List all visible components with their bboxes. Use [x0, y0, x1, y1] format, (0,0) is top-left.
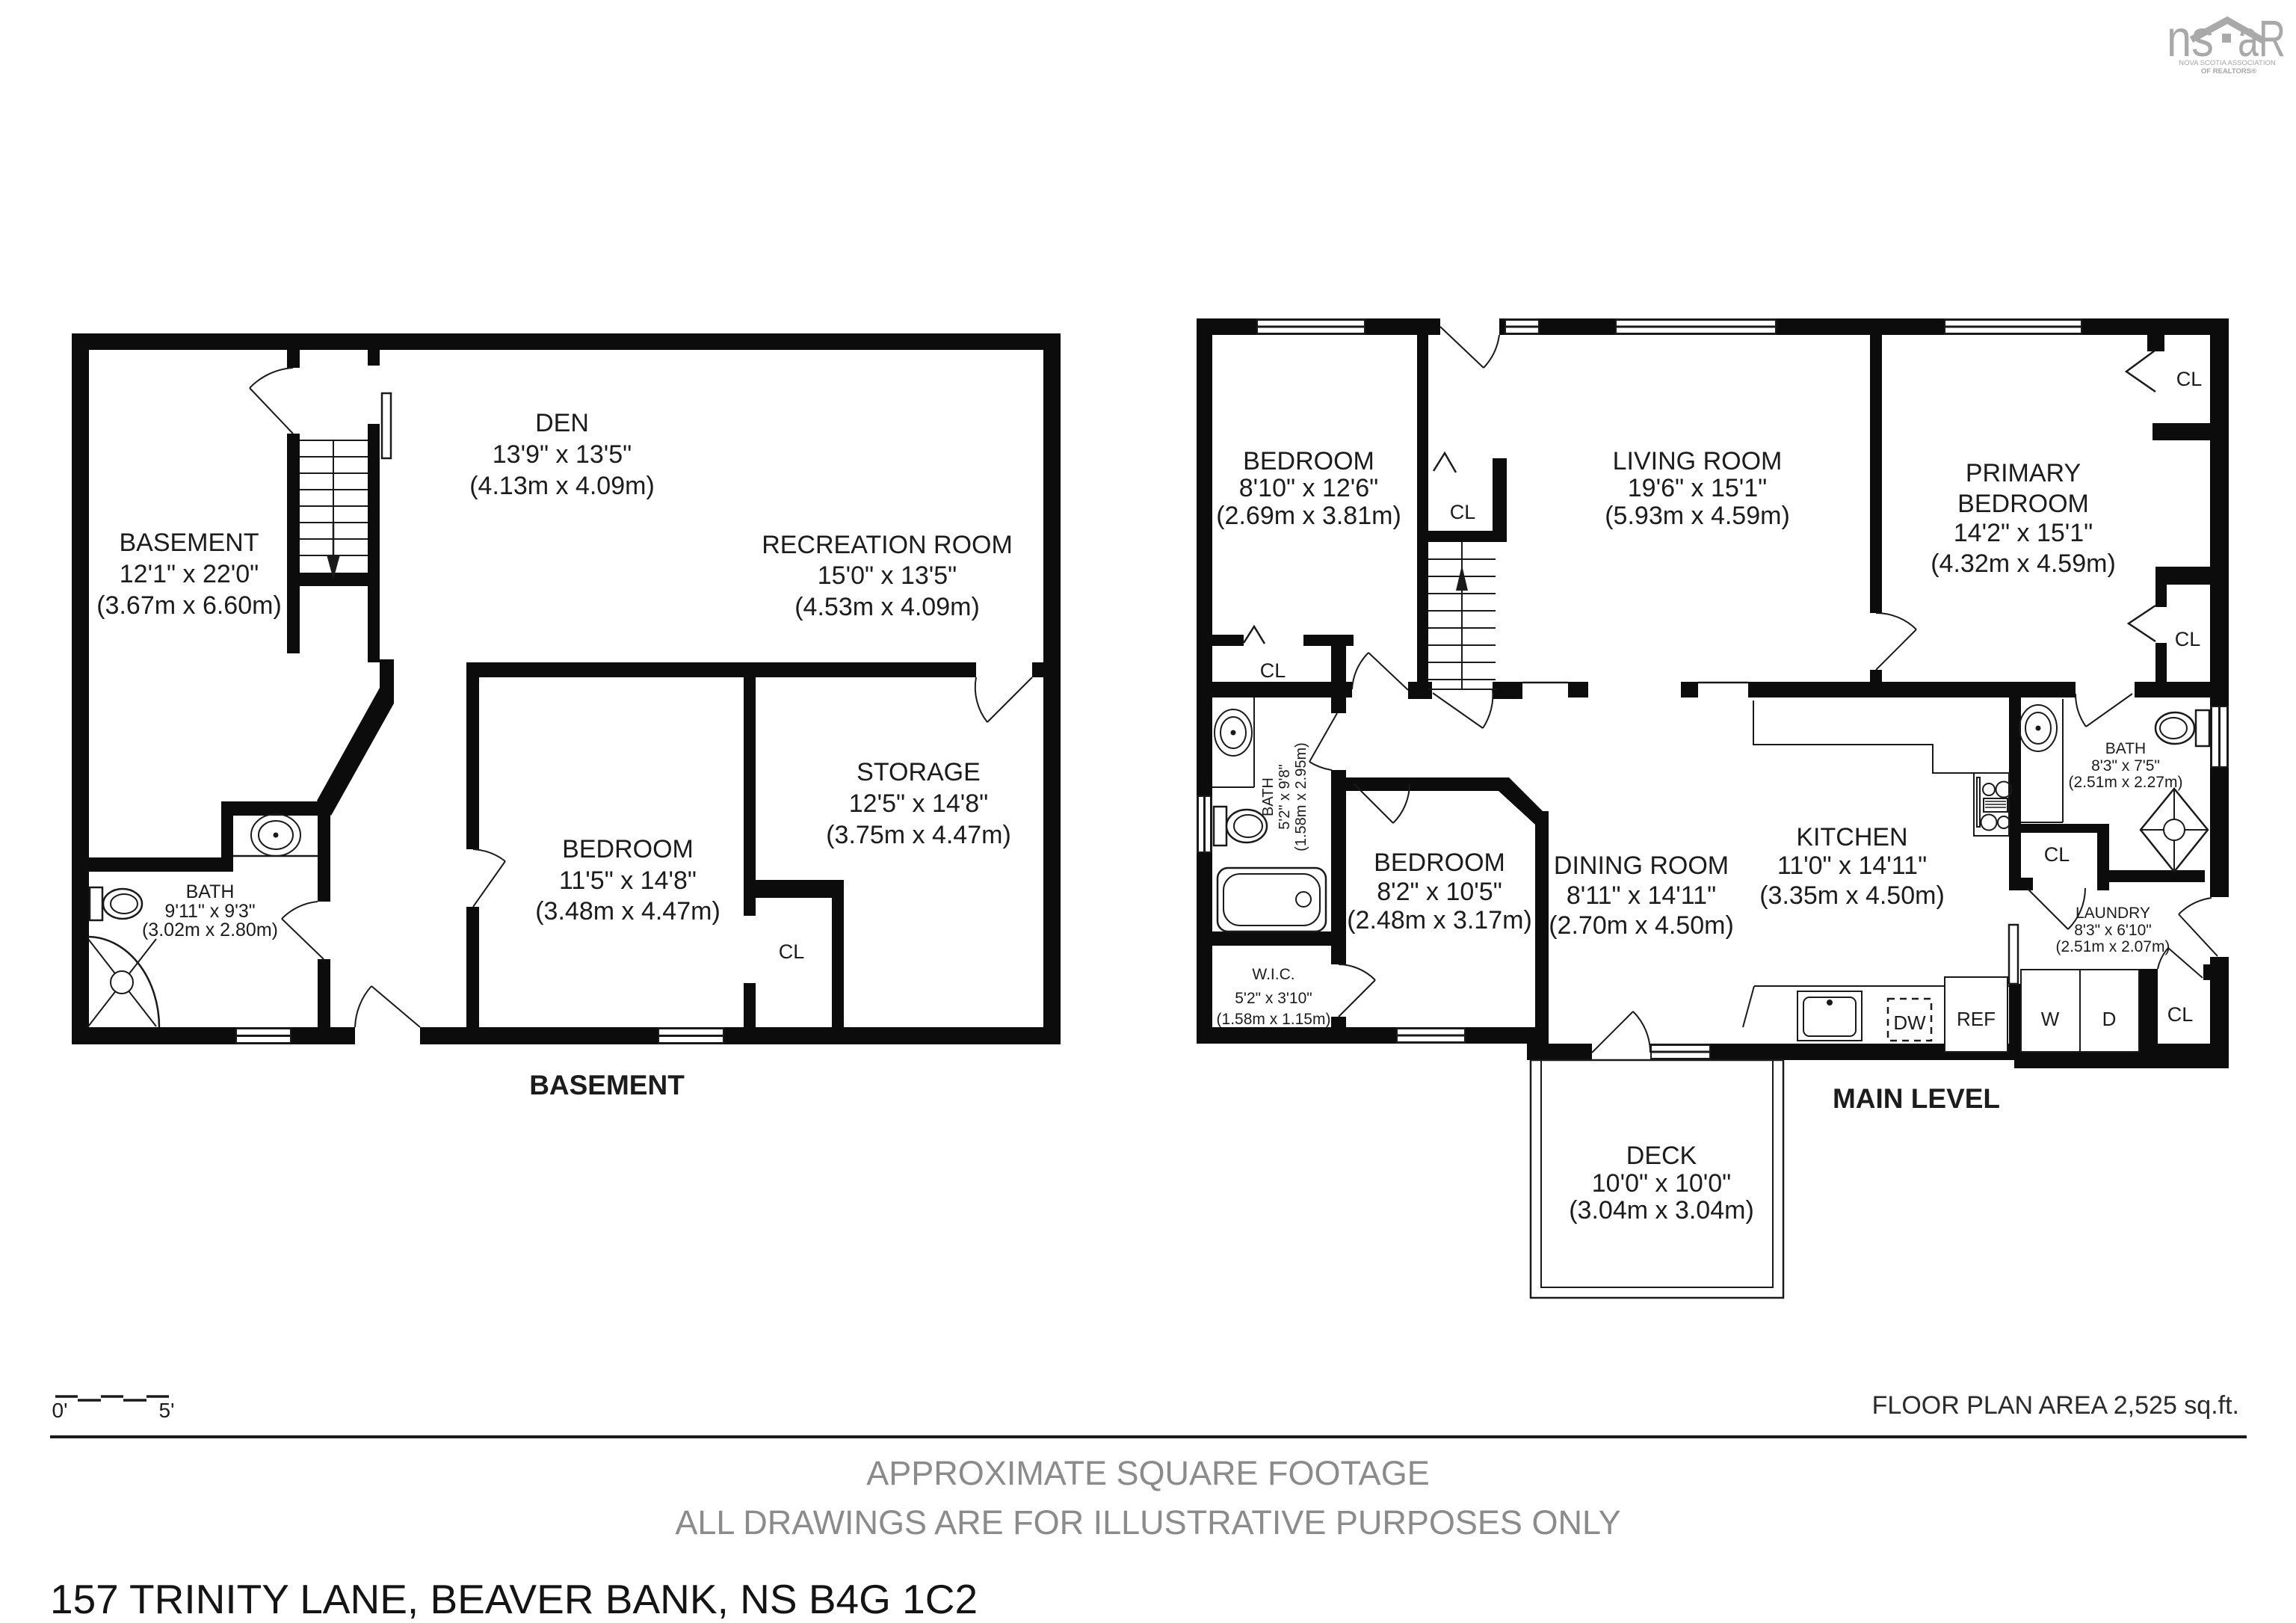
svg-text:12'1" x 22'0": 12'1" x 22'0"	[120, 560, 259, 588]
svg-text:11'5" x 14'8": 11'5" x 14'8"	[559, 866, 697, 895]
svg-text:BEDROOM: BEDROOM	[1374, 849, 1505, 877]
svg-text:10'0" x 10'0": 10'0" x 10'0"	[1592, 1169, 1731, 1198]
svg-text:12'5" x 14'8": 12'5" x 14'8"	[849, 789, 988, 818]
svg-text:(2.69m x 3.81m): (2.69m x 3.81m)	[1216, 502, 1401, 530]
svg-text:(1.58m x 2.95m): (1.58m x 2.95m)	[1293, 742, 1309, 851]
svg-text:BATH: BATH	[2105, 740, 2146, 757]
svg-text:CL: CL	[2167, 1003, 2194, 1026]
svg-text:ALL DRAWINGS ARE FOR ILLUSTRAT: ALL DRAWINGS ARE FOR ILLUSTRATIVE PURPOS…	[675, 1503, 1620, 1542]
svg-text:LAUNDRY: LAUNDRY	[2076, 905, 2150, 922]
svg-text:BATH: BATH	[186, 881, 235, 902]
svg-text:(3.02m x 2.80m): (3.02m x 2.80m)	[142, 920, 278, 940]
svg-text:CL: CL	[2175, 628, 2201, 650]
svg-text:(3.35m x 4.50m): (3.35m x 4.50m)	[1759, 881, 1945, 910]
svg-text:(2.51m x 2.07m): (2.51m x 2.07m)	[2056, 938, 2170, 955]
svg-text:(2.48m x 3.17m): (2.48m x 3.17m)	[1347, 906, 1532, 934]
svg-text:LIVING ROOM: LIVING ROOM	[1613, 447, 1783, 475]
svg-text:W.I.C.: W.I.C.	[1252, 966, 1294, 983]
svg-text:8'3" x 7'5": 8'3" x 7'5"	[2091, 757, 2160, 774]
svg-text:19'6" x 15'1": 19'6" x 15'1"	[1628, 474, 1767, 502]
svg-text:APPROXIMATE SQUARE FOOTAGE: APPROXIMATE SQUARE FOOTAGE	[866, 1454, 1429, 1492]
svg-text:KITCHEN: KITCHEN	[1796, 823, 1907, 851]
svg-text:CL: CL	[779, 940, 805, 963]
svg-text:RECREATION ROOM: RECREATION ROOM	[762, 531, 1013, 559]
svg-text:DINING ROOM: DINING ROOM	[1554, 851, 1729, 880]
svg-text:(3.04m x 3.04m): (3.04m x 3.04m)	[1569, 1196, 1754, 1225]
svg-text:CL: CL	[1450, 501, 1476, 523]
svg-text:BEDROOM: BEDROOM	[562, 835, 694, 863]
svg-text:BASEMENT: BASEMENT	[119, 529, 259, 557]
svg-text:(2.51m x 2.27m): (2.51m x 2.27m)	[2069, 774, 2183, 791]
svg-text:DEN: DEN	[535, 409, 589, 437]
svg-text:BEDROOM: BEDROOM	[1243, 447, 1374, 475]
svg-text:8'3" x 6'10": 8'3" x 6'10"	[2074, 922, 2152, 939]
svg-text:11'0" x 14'11": 11'0" x 14'11"	[1777, 851, 1927, 880]
svg-text:157 TRINITY LANE, BEAVER BANK,: 157 TRINITY LANE, BEAVER BANK, NS B4G 1C…	[50, 1576, 978, 1622]
svg-text:BASEMENT: BASEMENT	[529, 1070, 685, 1100]
svg-text:REF: REF	[1957, 1008, 1996, 1030]
svg-text:(3.67m x 6.60m): (3.67m x 6.60m)	[96, 591, 282, 620]
svg-text:BATH: BATH	[1260, 777, 1277, 816]
svg-text:0': 0'	[52, 1399, 68, 1422]
svg-text:8'10" x 12'6": 8'10" x 12'6"	[1239, 474, 1378, 502]
svg-text:DW: DW	[1893, 1011, 1926, 1034]
svg-text:FLOOR PLAN AREA 2,525 sq.ft.: FLOOR PLAN AREA 2,525 sq.ft.	[1872, 1391, 2239, 1420]
svg-text:13'9" x 13'5": 13'9" x 13'5"	[493, 440, 632, 469]
svg-text:(2.70m x 4.50m): (2.70m x 4.50m)	[1549, 911, 1734, 940]
svg-text:NOVA SCOTIA ASSOCIATION: NOVA SCOTIA ASSOCIATION	[2179, 59, 2276, 67]
svg-text:5'2" x 3'10": 5'2" x 3'10"	[1235, 990, 1312, 1007]
svg-text:PRIMARY: PRIMARY	[1966, 459, 2081, 487]
svg-text:8'11" x 14'11": 8'11" x 14'11"	[1567, 881, 1716, 910]
svg-text:(4.53m x 4.09m): (4.53m x 4.09m)	[794, 593, 980, 621]
svg-text:BEDROOM: BEDROOM	[1957, 490, 2089, 518]
svg-text:(3.75m x 4.47m): (3.75m x 4.47m)	[826, 821, 1011, 849]
svg-text:OF REALTORS®: OF REALTORS®	[2201, 67, 2256, 76]
svg-text:CL: CL	[2176, 368, 2203, 390]
svg-text:W: W	[2041, 1008, 2060, 1030]
svg-text:15'0" x 13'5": 15'0" x 13'5"	[818, 561, 957, 590]
svg-text:(1.58m x 1.15m): (1.58m x 1.15m)	[1217, 1011, 1331, 1028]
svg-text:8'2" x 10'5": 8'2" x 10'5"	[1377, 878, 1502, 906]
svg-text:14'2" x 15'1": 14'2" x 15'1"	[1954, 519, 2093, 547]
svg-text:(3.48m x 4.47m): (3.48m x 4.47m)	[535, 897, 720, 926]
svg-text:MAIN LEVEL: MAIN LEVEL	[1833, 1083, 2000, 1114]
svg-text:5': 5'	[159, 1399, 175, 1422]
svg-text:(4.13m x 4.09m): (4.13m x 4.09m)	[469, 472, 655, 500]
svg-text:CL: CL	[2044, 843, 2070, 866]
svg-text:STORAGE: STORAGE	[857, 758, 981, 786]
svg-text:DECK: DECK	[1626, 1142, 1697, 1170]
svg-text:9'11" x 9'3": 9'11" x 9'3"	[164, 901, 255, 922]
svg-text:5'2" x 9'8": 5'2" x 9'8"	[1277, 764, 1293, 829]
svg-text:D: D	[2102, 1008, 2117, 1030]
svg-text:CL: CL	[1260, 659, 1286, 682]
svg-text:(4.32m x 4.59m): (4.32m x 4.59m)	[1931, 549, 2116, 578]
svg-text:(5.93m x 4.59m): (5.93m x 4.59m)	[1605, 502, 1790, 530]
